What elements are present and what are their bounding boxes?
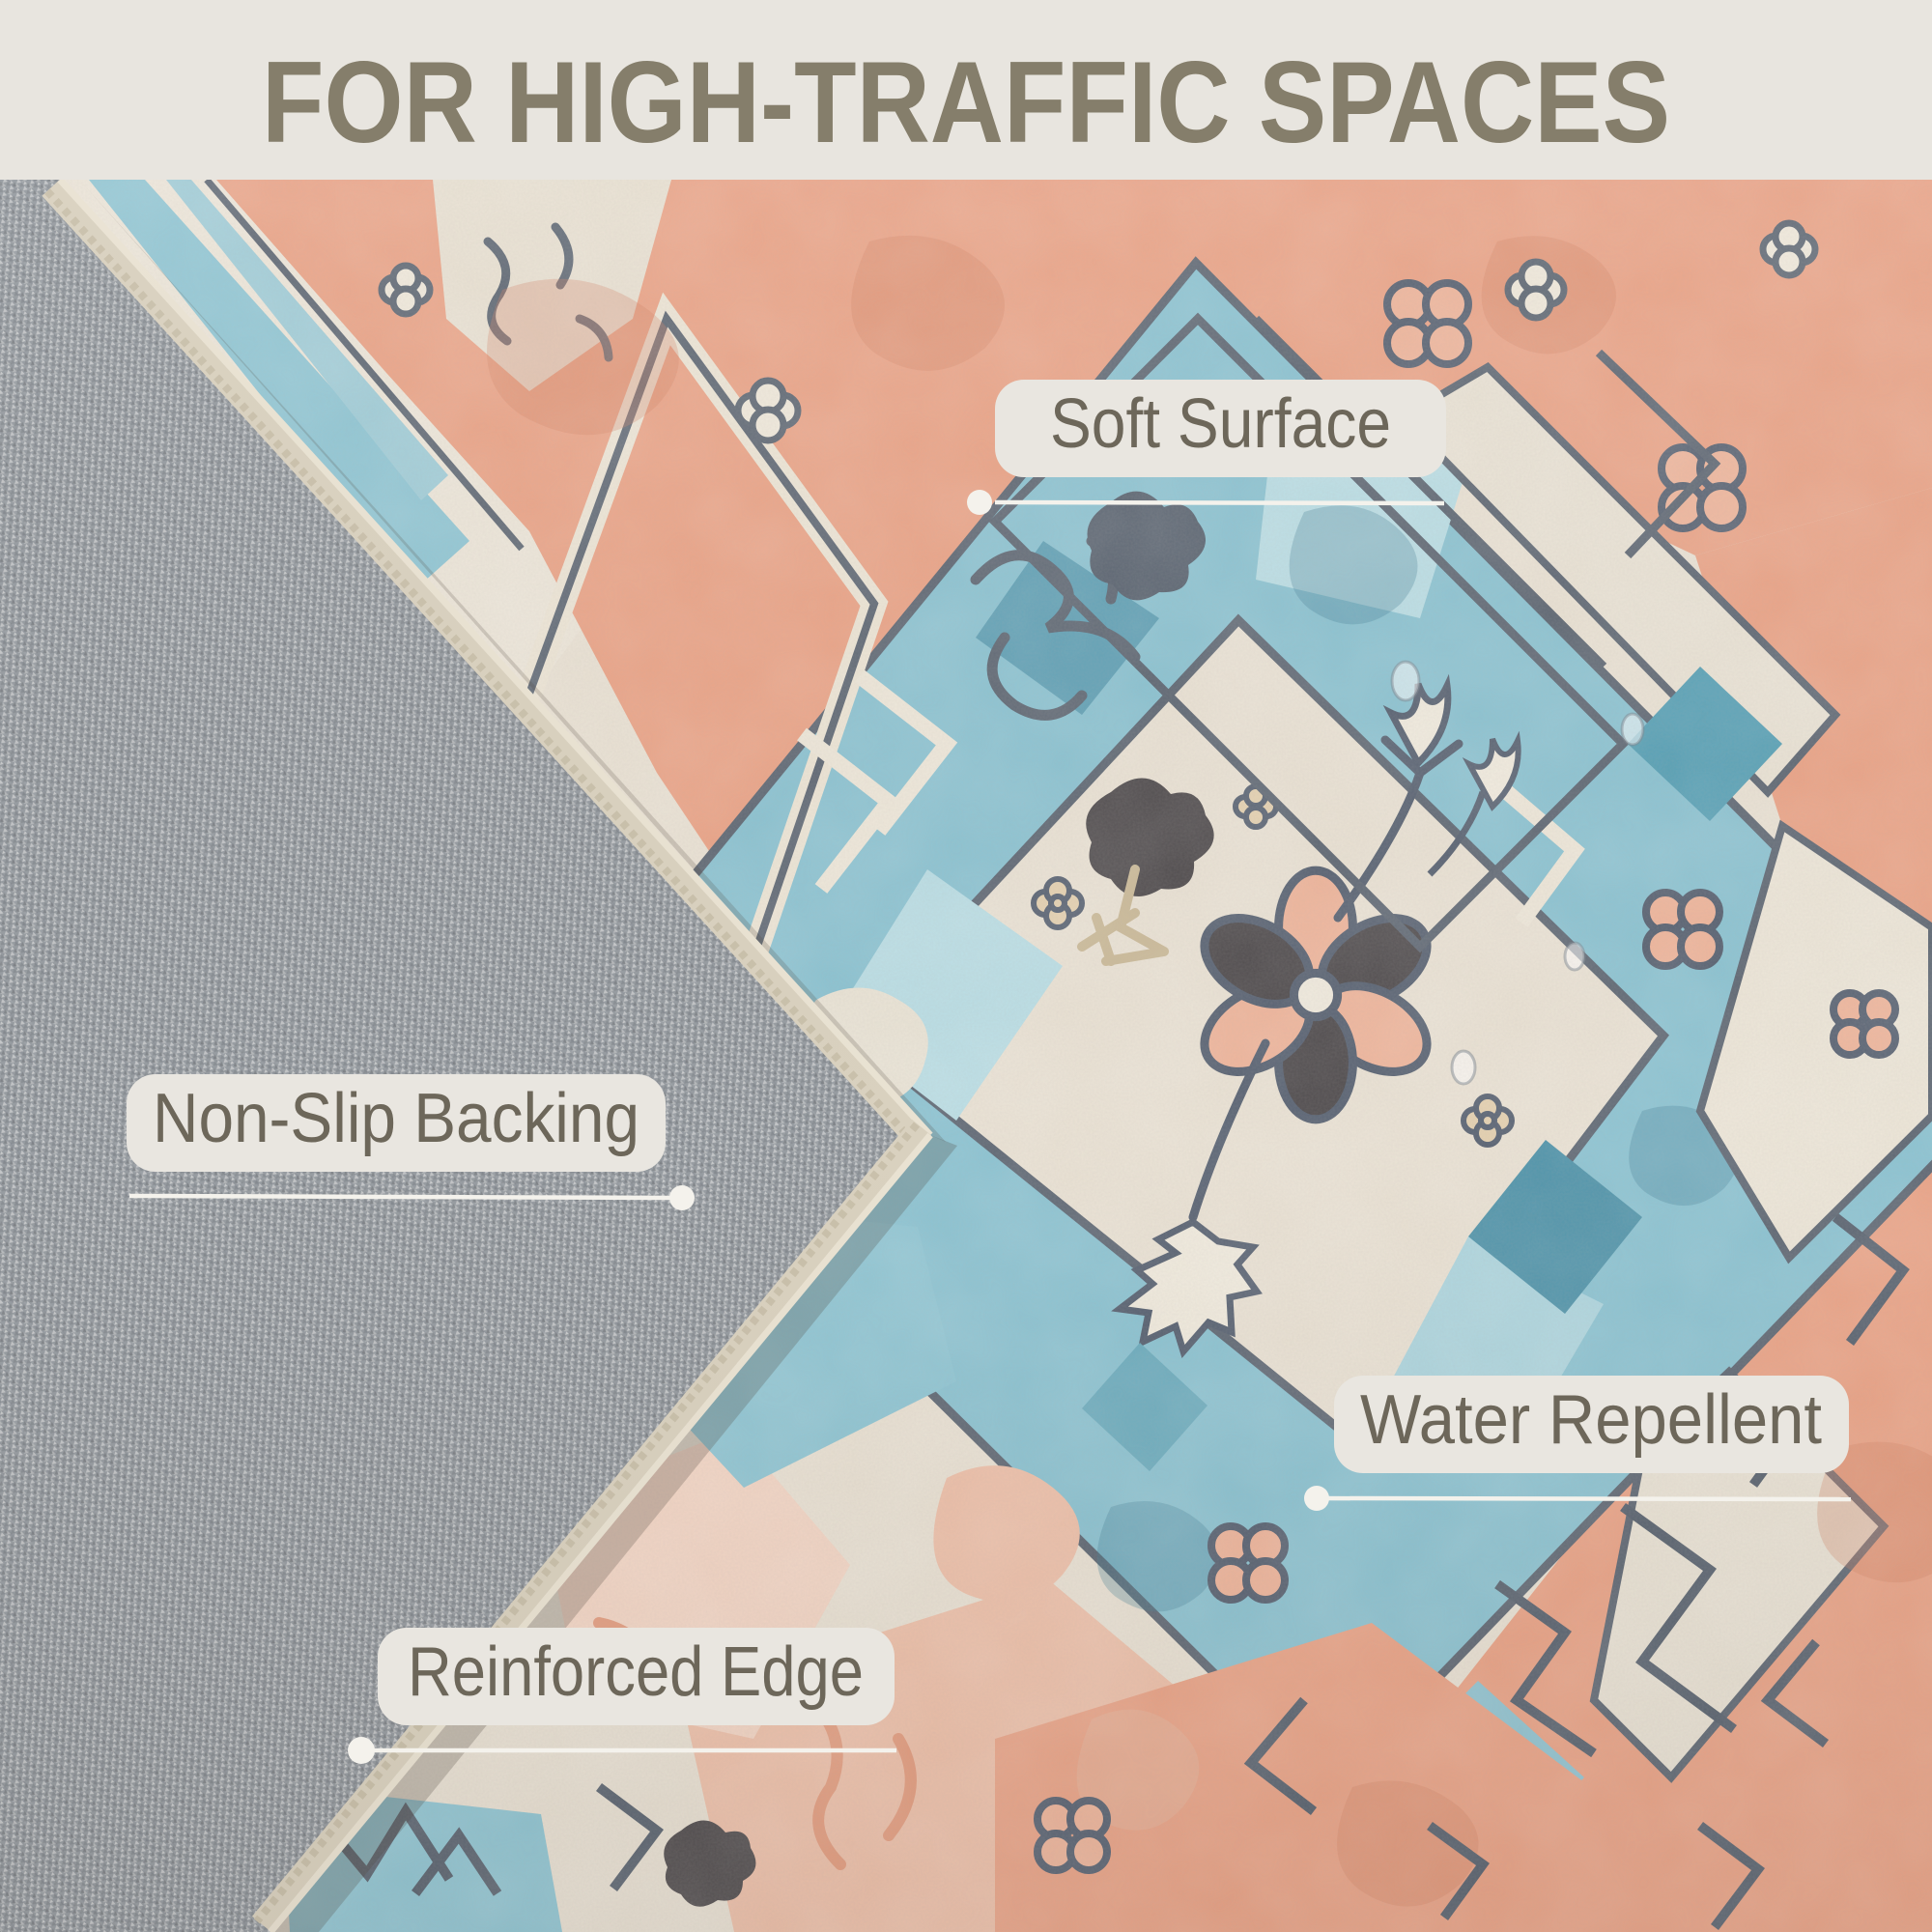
svg-text:Water Repellent: Water Repellent: [1360, 1381, 1822, 1459]
svg-text:FOR HIGH-TRAFFIC SPACES: FOR HIGH-TRAFFIC SPACES: [262, 38, 1670, 167]
svg-text:Reinforced Edge: Reinforced Edge: [408, 1634, 864, 1711]
svg-text:Soft Surface: Soft Surface: [1050, 385, 1391, 463]
svg-text:Non-Slip Backing: Non-Slip Backing: [153, 1080, 639, 1157]
